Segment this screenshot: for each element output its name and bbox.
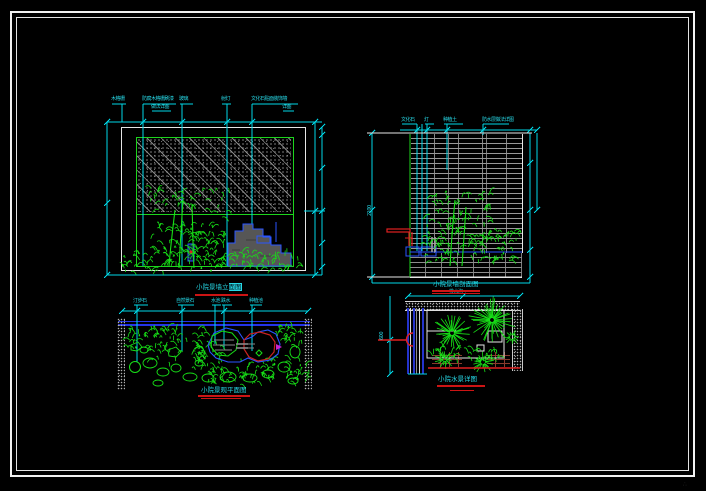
plan-label: 汀步石 [133, 299, 147, 304]
detail-title-underline [437, 385, 485, 387]
elevation-tree-foliage [145, 185, 231, 249]
plan-stepping-stone [130, 362, 141, 373]
cad-drawing-canvas: 木格栅 防腐木格栅刷漆 做法详图 玻璃 射灯 文化石贴面装饰墙 详图 文化石 灯… [0, 0, 706, 491]
watermark: ∴ [683, 481, 686, 488]
elevation-label: 玻璃 [179, 97, 188, 102]
plan-planting [147, 323, 214, 366]
elevation-label: 文化石贴面装饰墙 [251, 97, 287, 102]
section-label: 种植土 [443, 118, 457, 123]
section-ground-lines [367, 133, 532, 277]
linework-overlay [0, 0, 706, 491]
section-title: 小院景墙剖面图 [433, 281, 479, 288]
section-side-dimension: 2100 [368, 205, 373, 216]
plan-title-underline-2 [201, 398, 241, 399]
section-detail-callout [387, 229, 412, 246]
elevation-title: 小院景墙立面图 [196, 284, 242, 291]
elevation-label: 详图 [282, 105, 291, 110]
elevation-label: 防腐木格栅刷漆 [142, 97, 174, 102]
plan-label: 自然景石 [176, 299, 194, 304]
detail-palm-plant [469, 297, 515, 342]
section-title-underline-2 [432, 293, 480, 294]
detail-title: 小院水景详图 [438, 376, 477, 383]
elevation-label: 射灯 [221, 97, 230, 102]
elevation-shrubs [120, 246, 189, 275]
tree-stem [169, 210, 175, 266]
plant-stem [462, 207, 466, 266]
plan-label: 跌水 [221, 299, 230, 304]
plan-title: 小院景观平面图 [201, 387, 247, 394]
elevation-label: 木格栅 [111, 97, 125, 102]
detail-grass-tuft [435, 351, 453, 369]
elevation-title-text: 小院景墙立 [196, 283, 229, 291]
elevation-title-underline [195, 294, 248, 296]
section-label: 灯 [424, 118, 429, 123]
detail-grass-tuft [505, 330, 519, 344]
plan-rock-red [244, 332, 275, 361]
plan-title-underline [198, 395, 250, 397]
elevation-title-highlight: 面图 [229, 283, 242, 291]
plant-stem [450, 200, 455, 266]
section-title-underline [432, 290, 480, 292]
section-label: 防水层做法详图 [482, 118, 514, 123]
section-plants-right [494, 229, 522, 265]
section-label: 文化石 [401, 118, 415, 123]
detail-side-dimension: 600 [380, 332, 385, 340]
elevation-rock-feature [228, 222, 291, 266]
section-drain-boxes [406, 247, 522, 256]
elevation-label: 做法详图 [151, 105, 169, 110]
plan-label: 水池 [211, 299, 220, 304]
detail-title-underline-2 [450, 390, 474, 391]
plan-label: 种植池 [249, 299, 263, 304]
detail-palm-plant [435, 315, 471, 350]
